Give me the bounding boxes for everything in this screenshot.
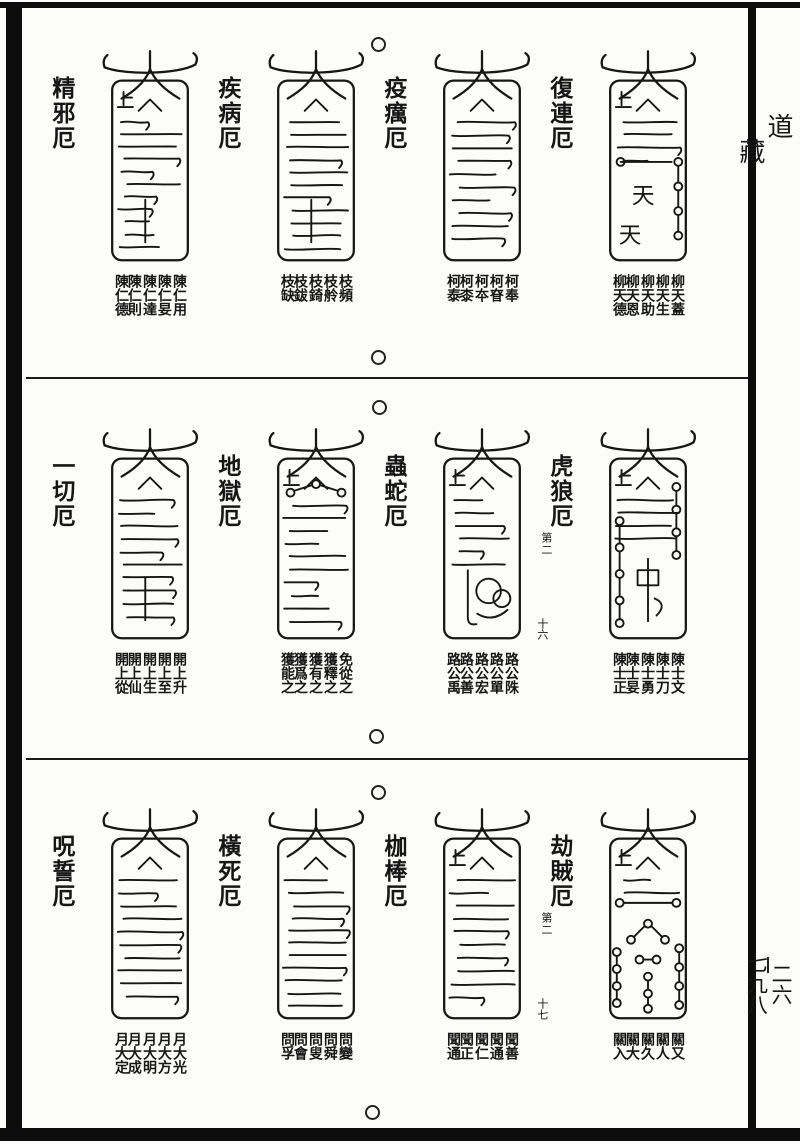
talisman-group: 疫癘厄 柯奉柯眘柯夲柯桼柯泰 [378,48,540,384]
donor-name-column: 路公禹 [434,652,460,701]
donor-name-column: 獲能之 [268,652,294,701]
talisman-sigil [596,806,700,1030]
donor-name: 柯泰 [445,274,460,302]
donor-name-column: 開上升開上至 [160,652,186,701]
donor-name-column: 聞善聞通 [492,1032,518,1067]
donor-name-column: 關又關人 [658,1032,684,1067]
talisman-label: 精邪厄 [48,76,73,151]
donor-name: 柳天生 [654,274,669,316]
donor-name: 月大定 [113,1032,128,1074]
registration-circle [371,785,386,800]
talisman-label: 蟲蛇厄 [380,454,405,529]
donor-name-column: 問孚 [268,1032,294,1067]
donor-name: 開上至 [156,652,171,694]
talisman-label: 枷棒厄 [380,834,405,909]
page-border-top [0,2,800,8]
donor-name: 關人 [654,1032,669,1060]
talisman-note: 第二 [540,912,552,936]
talisman-sigil [596,426,700,650]
donor-name: 聞通 [445,1032,460,1060]
talisman-sigil [98,806,202,1030]
donor-name-column: 月大光月大方 [160,1032,186,1081]
page-border-left [6,4,22,1134]
donor-name-column: 柯夲柯桼 [462,274,488,309]
donor-name: 柯夲 [473,274,488,302]
donor-name-column: 陳士文陳士刀 [658,652,684,701]
donor-name: 獲能之 [279,652,294,694]
svg-text:天: 天 [619,223,642,249]
talisman-group: 復連厄 天天 柳天蓋柳天生柳天助柳天恩柳天德 [544,48,706,384]
donor-name-column: 柳天助柳天恩 [628,274,654,323]
talisman-sigil [264,48,368,272]
donor-name: 關又 [669,1032,684,1060]
donor-name: 問舜 [322,1032,337,1060]
donor-name-column: 開上生開上仙 [130,652,156,701]
donor-name-column: 問叟問會 [296,1032,322,1067]
donor-name: 枝缺 [279,274,294,302]
donor-name: 枝頻 [337,274,352,302]
donor-name-column: 陳仁用陳仁妟 [160,274,186,323]
canon-title-char: 藏 [736,138,764,164]
donor-name-column: 枝錡枝鈸 [296,274,322,309]
daozang-scan-page: 道 藏 二六 七九八 精邪厄 陳仁用陳仁妟陳仁達陳仁則陳仁德疾病厄 枝頻枝舲枝錡… [0,0,800,1144]
canon-title-char: 道 [764,88,792,164]
donor-name: 聞仁 [473,1032,488,1060]
talisman-sigil: 天天 [596,48,700,272]
donor-name: 問孚 [279,1032,294,1060]
donor-name: 陳仁德 [113,274,128,316]
talisman-sigil [98,48,202,272]
donor-name: 問變 [337,1032,352,1060]
talisman-group: 精邪厄 陳仁用陳仁妟陳仁達陳仁則陳仁德 [46,48,208,384]
donor-name: 枝舲 [322,274,337,302]
donor-name-column: 月大明月大成 [130,1032,156,1081]
volume-page-number: 二六 七九八 [762,952,792,1015]
donor-name: 關入 [611,1032,626,1060]
donor-name-column: 關入 [600,1032,626,1067]
donor-name: 問叟 [307,1032,322,1060]
donor-name: 柯奉 [503,274,518,302]
donor-name: 柳天德 [611,274,626,316]
donor-name: 陳仁達 [141,274,156,316]
talisman-sigil [98,426,202,650]
donor-name: 陳士勇 [639,652,654,694]
talisman-label: 疫癘厄 [380,76,405,151]
talisman-sigil [430,48,534,272]
donor-name-column: 柯奉柯眘 [492,274,518,309]
talisman-note: 第二 [540,532,552,556]
donor-name: 獲釋之 [322,652,337,694]
donor-name: 獲有之 [307,652,322,694]
donor-name-column: 路公陎路公單 [492,652,518,701]
donor-name-column: 柳天德 [600,274,626,323]
donor-name: 開上從 [113,652,128,694]
talisman-group: 疾病厄 枝頻枝舲枝錡枝鈸枝缺 [212,48,374,384]
talisman-group: 一切厄 開上升開上至開上生開上仙開上從 [46,426,208,762]
donor-name-column: 枝缺 [268,274,294,309]
donor-name: 陳仁妟 [156,274,171,316]
donor-name-column: 關久關大 [628,1032,654,1067]
talisman-group: 蟲蛇厄 路公陎路公單路公宏路公善路公禹十六 [378,426,540,762]
donor-name: 月大明 [141,1032,156,1074]
talisman-sigil [430,806,534,1030]
talisman-group: 虎狼厄第二 陳士文陳士刀陳士勇陳士妟陳士正 [544,426,706,762]
donor-name-column: 柯泰 [434,274,460,309]
talisman-label: 疾病厄 [214,76,239,151]
page-number: 七九八 [745,952,768,1015]
donor-name-column: 問變問舜 [326,1032,352,1067]
donor-name: 關久 [639,1032,654,1060]
donor-name: 聞善 [503,1032,518,1060]
canon-title: 道 藏 [760,88,792,164]
donor-name-column: 枝頻枝舲 [326,274,352,309]
donor-name: 路公陎 [503,652,518,694]
donor-name: 月大光 [171,1032,186,1074]
donor-name: 開上升 [171,652,186,694]
talisman-sigil [264,426,368,650]
donor-name-column: 開上從 [102,652,128,701]
donor-name: 免從之 [337,652,352,694]
talisman-label: 一切厄 [48,454,73,529]
talisman-label: 虎狼厄 [546,454,571,529]
donor-name-column: 陳仁德 [102,274,128,323]
donor-name-column: 陳仁達陳仁則 [130,274,156,323]
donor-name-column: 月大定 [102,1032,128,1081]
donor-name: 陳士刀 [654,652,669,694]
talisman-group: 橫死厄 問變問舜問叟問會問孚 [212,806,374,1142]
donor-name: 開上生 [141,652,156,694]
talisman-group: 呪誓厄 月大光月大方月大明月大成月大定 [46,806,208,1142]
svg-text:天: 天 [632,183,655,209]
donor-name: 路公單 [488,652,503,694]
donor-name: 陳士文 [669,652,684,694]
registration-circle [372,400,387,415]
donor-name: 柳天助 [639,274,654,316]
donor-name-column: 聞仁聞正 [462,1032,488,1067]
donor-name-column: 聞通 [434,1032,460,1067]
donor-name-column: 陳士正 [600,652,626,701]
talisman-sigil [430,426,534,650]
talisman-label: 呪誓厄 [48,834,73,909]
volume-number: 二六 [769,952,792,1015]
donor-name-column: 獲有之獲爲之 [296,652,322,701]
talisman-label: 劫賊厄 [546,834,571,909]
donor-name-column: 柳天蓋柳天生 [658,274,684,323]
donor-name-column: 陳士勇陳士妟 [628,652,654,701]
talisman-label: 復連厄 [546,76,571,151]
donor-name: 路公宏 [473,652,488,694]
donor-name: 柳天蓋 [669,274,684,316]
donor-name: 枝錡 [307,274,322,302]
donor-name: 柯眘 [488,274,503,302]
talisman-group: 劫賊厄第二 關又關人關久關大關入 [544,806,706,1142]
talisman-label: 地獄厄 [214,454,239,529]
donor-name: 聞通 [488,1032,503,1060]
donor-name-column: 路公宏路公善 [462,652,488,701]
talisman-sigil [264,806,368,1030]
talisman-group: 地獄厄 免從之獲釋之獲有之獲爲之獲能之 [212,426,374,762]
talisman-label: 橫死厄 [214,834,239,909]
donor-name: 陳士正 [611,652,626,694]
talisman-group: 枷棒厄 聞善聞通聞仁聞正聞通十七 [378,806,540,1142]
donor-name: 月大方 [156,1032,171,1074]
donor-name-column: 免從之獲釋之 [326,652,352,701]
donor-name: 陳仁用 [171,274,186,316]
donor-name: 路公禹 [445,652,460,694]
